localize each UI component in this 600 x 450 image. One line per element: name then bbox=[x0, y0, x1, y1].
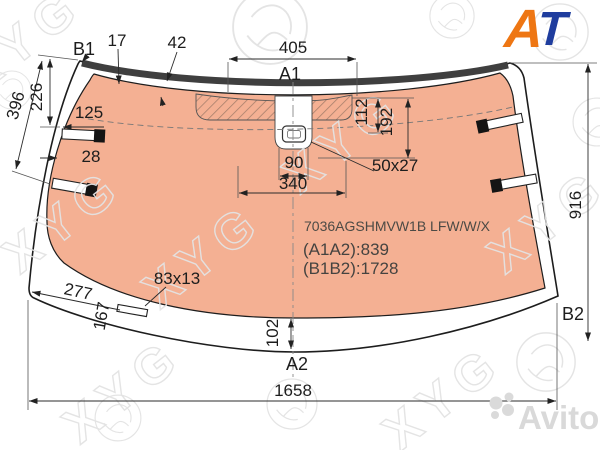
dim-226-label: 226 bbox=[27, 83, 46, 111]
dim-167-label: 167 bbox=[90, 300, 114, 331]
part-number-text: 7036AGSHMVW1B LFW/W/X bbox=[304, 218, 491, 234]
dim-b1b2-text: (B1B2):1728 bbox=[303, 259, 398, 278]
dim-102-label: 102 bbox=[263, 319, 282, 347]
ref-a1-label: A1 bbox=[279, 64, 301, 84]
dim-1658-label: 1658 bbox=[274, 381, 312, 400]
dim-405-label: 405 bbox=[279, 38, 307, 57]
diagram-svg: XYG XYG XYG XYG XYG XYG XYG bbox=[0, 0, 600, 450]
xyg-watermark: XYG bbox=[52, 326, 193, 450]
dim-90-label: 90 bbox=[285, 153, 304, 172]
dim-192-label: 192 bbox=[377, 108, 396, 136]
dim-42-label: 42 bbox=[168, 33, 187, 52]
dim-28-label: 28 bbox=[82, 147, 101, 166]
dim-396-label: 396 bbox=[3, 89, 29, 122]
ref-a2-label: A2 bbox=[286, 354, 308, 374]
dim-112-label: 112 bbox=[352, 98, 371, 125]
windshield-diagram-image: XYG XYG XYG XYG XYG XYG XYG bbox=[0, 0, 600, 450]
avito-text: Avito bbox=[518, 399, 599, 436]
dim-125-label: 125 bbox=[75, 103, 103, 122]
dim-340-label: 340 bbox=[279, 174, 307, 193]
avito-watermark: Avito bbox=[490, 393, 600, 437]
xyg-watermark: XYG bbox=[372, 333, 513, 450]
dim-83x13-label: 83x13 bbox=[154, 269, 200, 288]
dim-a1a2-text: (A1A2):839 bbox=[303, 240, 389, 259]
ref-b1-label: B1 bbox=[73, 39, 95, 59]
avito-logo-dots bbox=[490, 393, 515, 420]
dim-916-label: 916 bbox=[566, 191, 585, 219]
dim-17-label: 17 bbox=[108, 31, 127, 50]
ref-b2-label: B2 bbox=[562, 304, 584, 324]
dim-50x27-label: 50x27 bbox=[372, 156, 418, 175]
